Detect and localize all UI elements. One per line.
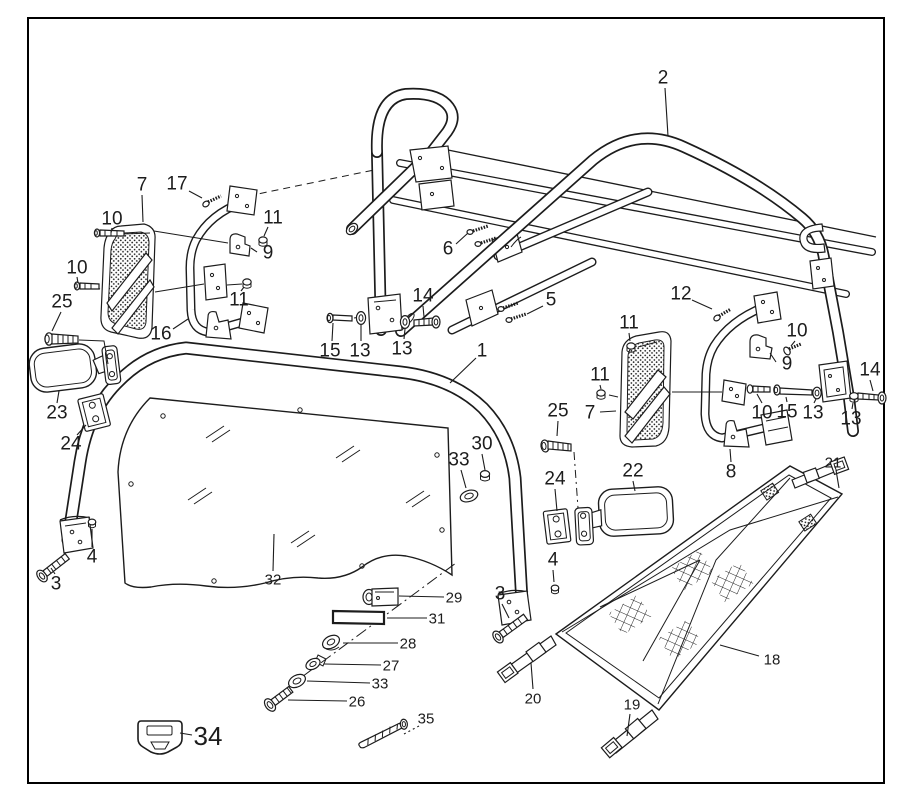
callout-label-18: 18: [764, 652, 781, 669]
callout-label-9: 9: [263, 243, 274, 264]
mount-sleeve-plate: [410, 146, 452, 182]
parts-diagram-page: 2717101191025111665141513131121110911147…: [0, 0, 898, 799]
fastener-stack: [262, 563, 456, 713]
callout-label-14: 14: [412, 286, 434, 307]
callout-label-25: 25: [51, 292, 72, 313]
mount-block-11: [204, 264, 227, 300]
callout-leader-6: [456, 233, 468, 244]
callout-leader-15: [332, 323, 333, 341]
callout-label-13: 13: [802, 403, 823, 424]
clip-34: [138, 721, 182, 754]
callout-leader-9: [251, 248, 257, 252]
callout-label-20: 20: [525, 691, 542, 708]
hook-bracket: [206, 312, 231, 339]
callout-leader-17: [189, 191, 202, 198]
callout-label-28: 28: [400, 636, 417, 653]
callout-label-24: 24: [60, 434, 82, 455]
callout-leader-5: [527, 306, 543, 314]
callout-leader-33: [307, 681, 370, 683]
hook-bracket: [724, 421, 749, 447]
callout-label-32: 32: [265, 572, 282, 589]
callout-leader-16: [173, 319, 188, 329]
right-mesh-panel: [620, 332, 671, 447]
callout-label-10: 10: [751, 403, 772, 424]
callout-leader-18: [720, 645, 759, 656]
callout-leader-2: [665, 88, 668, 136]
callout-leader-23: [57, 391, 59, 403]
callout-leader-14: [870, 380, 873, 391]
callout-label-33: 33: [372, 676, 389, 693]
callout-label-11: 11: [590, 365, 610, 386]
hex-bolt-26: [262, 684, 295, 714]
callout-label-4: 4: [548, 550, 559, 571]
windshield-glass: [118, 398, 452, 588]
callout-leader-4: [553, 570, 554, 582]
callout-label-23: 23: [46, 403, 67, 424]
plate-31: [333, 611, 384, 624]
callout-label-27: 27: [383, 658, 400, 675]
callout-leader-25: [52, 312, 61, 331]
callout-label-10: 10: [101, 209, 122, 230]
callout-label-22: 22: [622, 461, 643, 482]
callout-label-9: 9: [782, 354, 793, 375]
callout-label-1: 1: [477, 341, 488, 362]
callout-label-17: 17: [166, 174, 187, 195]
frame8-top-plate: [754, 292, 781, 323]
callout-label-11: 11: [619, 313, 639, 334]
callout-label-24: 24: [544, 469, 566, 490]
callout-label-30: 30: [471, 434, 492, 455]
bumper-bracket-9: [230, 234, 250, 256]
callout-leader-7: [142, 195, 143, 222]
callout-label-21: 21: [825, 455, 842, 472]
post-clamp-bracket: [368, 294, 402, 334]
callout-label-26: 26: [349, 694, 366, 711]
pillar-plate: [810, 258, 834, 289]
callout-label-13: 13: [840, 409, 861, 430]
callout-leader-27: [324, 664, 381, 665]
callout-label-2: 2: [658, 68, 669, 89]
callout-leader-26: [288, 700, 347, 701]
callout-label-33: 33: [448, 450, 469, 471]
callout-leader-33: [461, 470, 466, 488]
callout-label-16: 16: [150, 324, 171, 345]
callout-label-10: 10: [786, 321, 807, 342]
callout-leader-11: [600, 385, 601, 389]
clamp-6-screw: [475, 242, 481, 247]
callout-label-3: 3: [51, 574, 62, 595]
self-tapping-screw-35: [355, 718, 411, 749]
callout-label-15: 15: [776, 402, 797, 423]
callout-label-7: 7: [137, 175, 148, 196]
callout-label-11: 11: [263, 208, 283, 229]
callout-label-25: 25: [547, 401, 568, 422]
callout-label-34: 34: [194, 721, 223, 751]
callout-label-14: 14: [859, 360, 881, 381]
centerline-dashed: [248, 170, 374, 196]
bumper-bracket-9: [750, 335, 772, 359]
callout-leader-25: [557, 421, 558, 436]
callout-label-6: 6: [443, 239, 454, 260]
callout-label-11: 11: [229, 290, 249, 311]
callout-leader-1: [450, 358, 476, 383]
callout-leader-20: [531, 663, 533, 689]
callout-leader-9: [770, 353, 776, 362]
callout-label-4: 4: [87, 547, 98, 568]
callout-leader-24: [555, 489, 557, 511]
left-mesh-panel: [101, 224, 155, 338]
mount-block-10: [722, 380, 746, 405]
callout-label-29: 29: [446, 590, 463, 607]
callout-label-8: 8: [726, 462, 737, 483]
callout-label-5: 5: [546, 290, 557, 311]
callout-label-19: 19: [624, 697, 641, 714]
callout-label-13: 13: [391, 339, 412, 360]
right-mirror-bracket: [543, 509, 571, 545]
callout-leader-7: [600, 411, 616, 412]
right-mirror: [574, 486, 675, 545]
callout-label-3: 3: [495, 584, 506, 605]
callout-leader-8: [730, 449, 731, 462]
nut-28: [320, 632, 342, 651]
clamp-5-bracket: [466, 290, 498, 326]
exploded-parts-diagram: 2717101191025111665141513131121110911147…: [0, 0, 898, 799]
callout-leader-29: [399, 596, 444, 597]
callout-label-35: 35: [418, 711, 435, 728]
callout-label-13: 13: [349, 341, 370, 362]
callout-label-10: 10: [66, 258, 87, 279]
callout-label-7: 7: [585, 403, 596, 424]
callout-label-31: 31: [429, 611, 446, 628]
frame16-top-plate: [227, 186, 257, 215]
callout-leader-30: [482, 454, 485, 470]
callout-label-15: 15: [319, 341, 340, 362]
callout-leader-12: [692, 300, 712, 309]
callout-label-12: 12: [670, 284, 691, 305]
left-grab-frame: [190, 186, 268, 339]
washer-27: [304, 656, 322, 672]
